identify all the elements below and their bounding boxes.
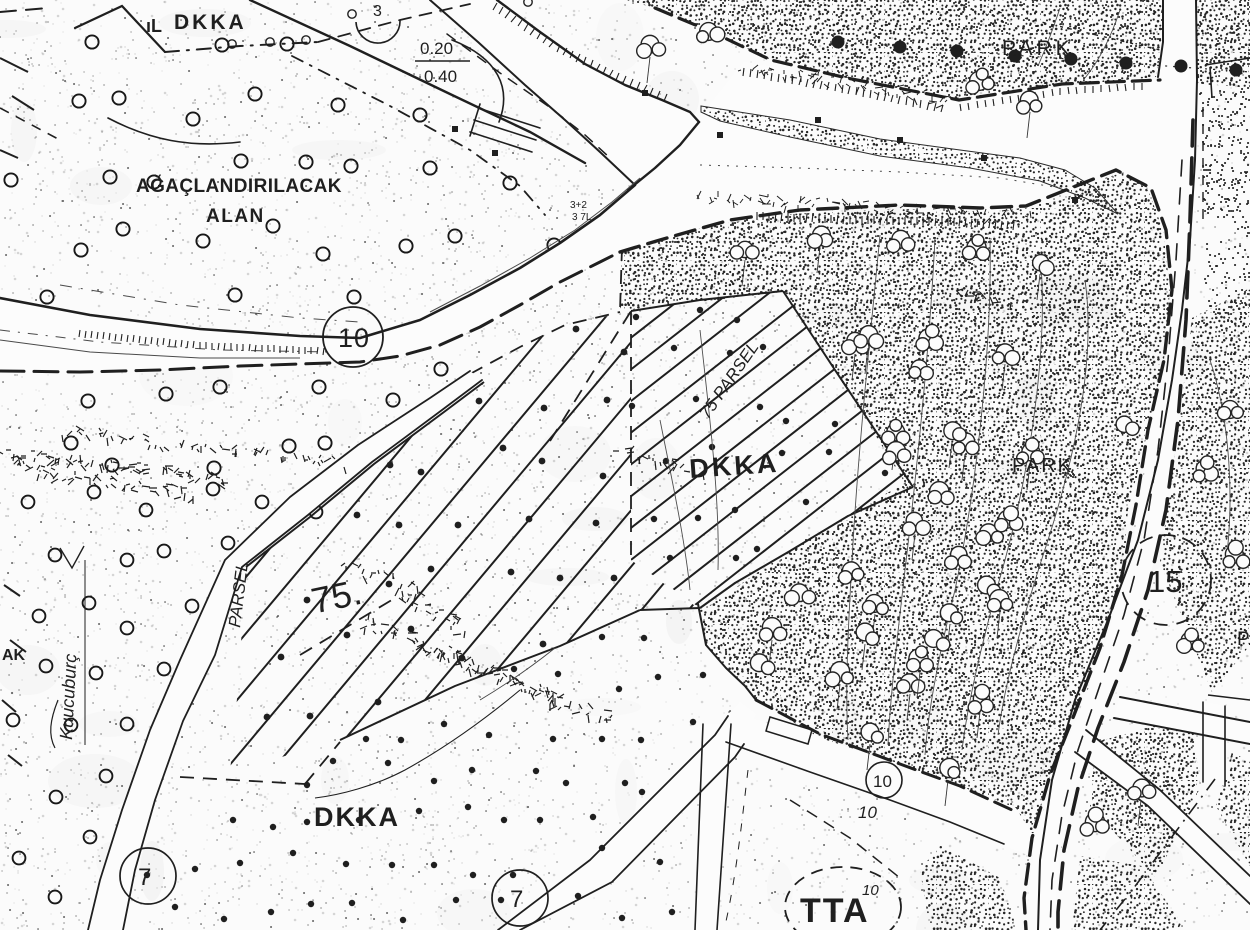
- svg-text:PARK: PARK: [1002, 37, 1074, 60]
- svg-text:ALAN: ALAN: [206, 206, 265, 227]
- svg-text:10: 10: [873, 772, 892, 791]
- svg-text:DKKA: DKKA: [688, 448, 780, 484]
- svg-text:0.20: 0.20: [420, 39, 453, 58]
- svg-text:0.40: 0.40: [424, 67, 457, 86]
- svg-text:10: 10: [338, 323, 370, 353]
- svg-text:AĞAÇLANDIRILACAK: AĞAÇLANDIRILACAK: [136, 175, 342, 197]
- svg-text:DKKA: DKKA: [174, 11, 247, 34]
- svg-text:TTA: TTA: [800, 892, 870, 930]
- svg-text:7: 7: [138, 864, 151, 891]
- svg-text:PARK: PARK: [1012, 455, 1073, 477]
- svg-text:15: 15: [1148, 564, 1182, 599]
- svg-text:P.: P.: [1237, 629, 1250, 650]
- svg-text:7: 7: [510, 886, 523, 913]
- svg-text:10: 10: [858, 803, 877, 822]
- svg-text:DKKA: DKKA: [314, 802, 400, 832]
- svg-text:3 7L: 3 7L: [572, 212, 592, 223]
- svg-text:3: 3: [373, 3, 382, 20]
- svg-text:ıL: ıL: [146, 16, 162, 36]
- svg-text:3+2: 3+2: [570, 200, 587, 211]
